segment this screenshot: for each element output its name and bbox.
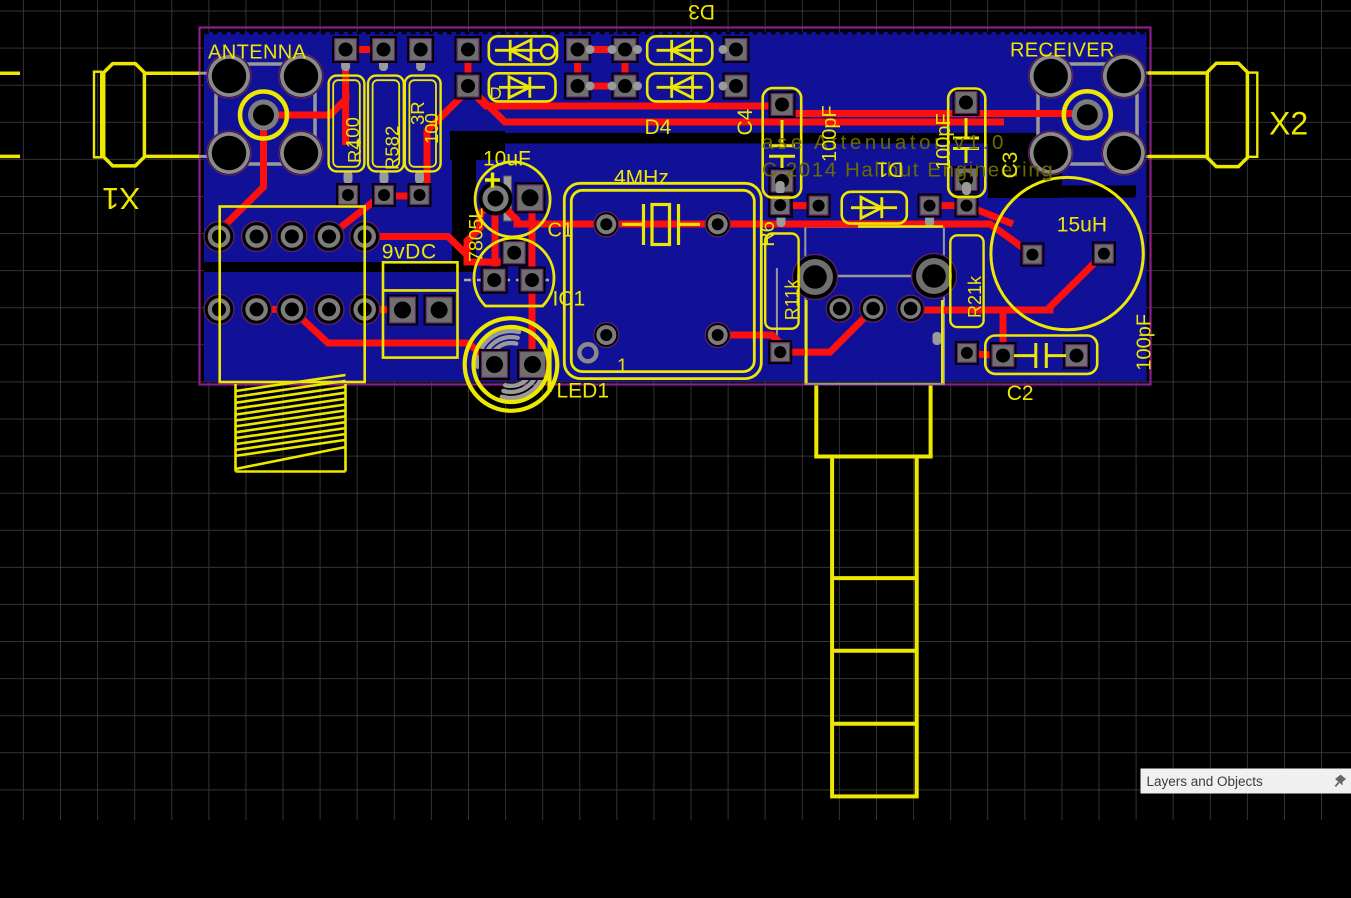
svg-text:100pF: 100pF xyxy=(1134,314,1156,371)
svg-text:4MHz: 4MHz xyxy=(614,167,669,190)
svg-text:D4: D4 xyxy=(645,116,672,139)
svg-text:X1: X1 xyxy=(102,181,140,216)
svg-text:7805L: 7805L xyxy=(466,208,488,262)
svg-text:100: 100 xyxy=(421,113,442,144)
svg-text:R582: R582 xyxy=(382,126,403,170)
svg-text:9vDC: 9vDC xyxy=(382,241,437,264)
svg-text:C1: C1 xyxy=(548,220,574,242)
svg-text:R6: R6 xyxy=(757,221,779,247)
svg-text:100: 100 xyxy=(342,117,363,148)
svg-text:C2: C2 xyxy=(1007,382,1034,405)
svg-text:100pF: 100pF xyxy=(933,113,955,170)
svg-text:10uF: 10uF xyxy=(483,148,531,171)
svg-text:R21k: R21k xyxy=(965,275,985,318)
svg-text:D3: D3 xyxy=(688,0,715,23)
svg-text:D: D xyxy=(490,84,502,103)
svg-text:1: 1 xyxy=(617,356,628,377)
svg-text:IC1: IC1 xyxy=(553,288,586,311)
svg-text:15uH: 15uH xyxy=(1057,214,1107,237)
svg-text:100pF: 100pF xyxy=(819,105,841,162)
svg-text:R11k: R11k xyxy=(782,279,802,321)
svg-text:C4: C4 xyxy=(734,108,757,135)
svg-text:RECEIVER: RECEIVER xyxy=(1010,40,1115,62)
svg-text:X2: X2 xyxy=(1269,106,1308,142)
svg-text:D1: D1 xyxy=(877,158,904,181)
svg-text:Layers and Objects: Layers and Objects xyxy=(1147,774,1264,789)
svg-text:C3: C3 xyxy=(999,152,1022,179)
svg-text:LED1: LED1 xyxy=(557,380,610,403)
svg-text:ase Attenuator v1.0: ase Attenuator v1.0 xyxy=(762,131,1007,154)
svg-text:ANTENNA: ANTENNA xyxy=(208,42,307,64)
